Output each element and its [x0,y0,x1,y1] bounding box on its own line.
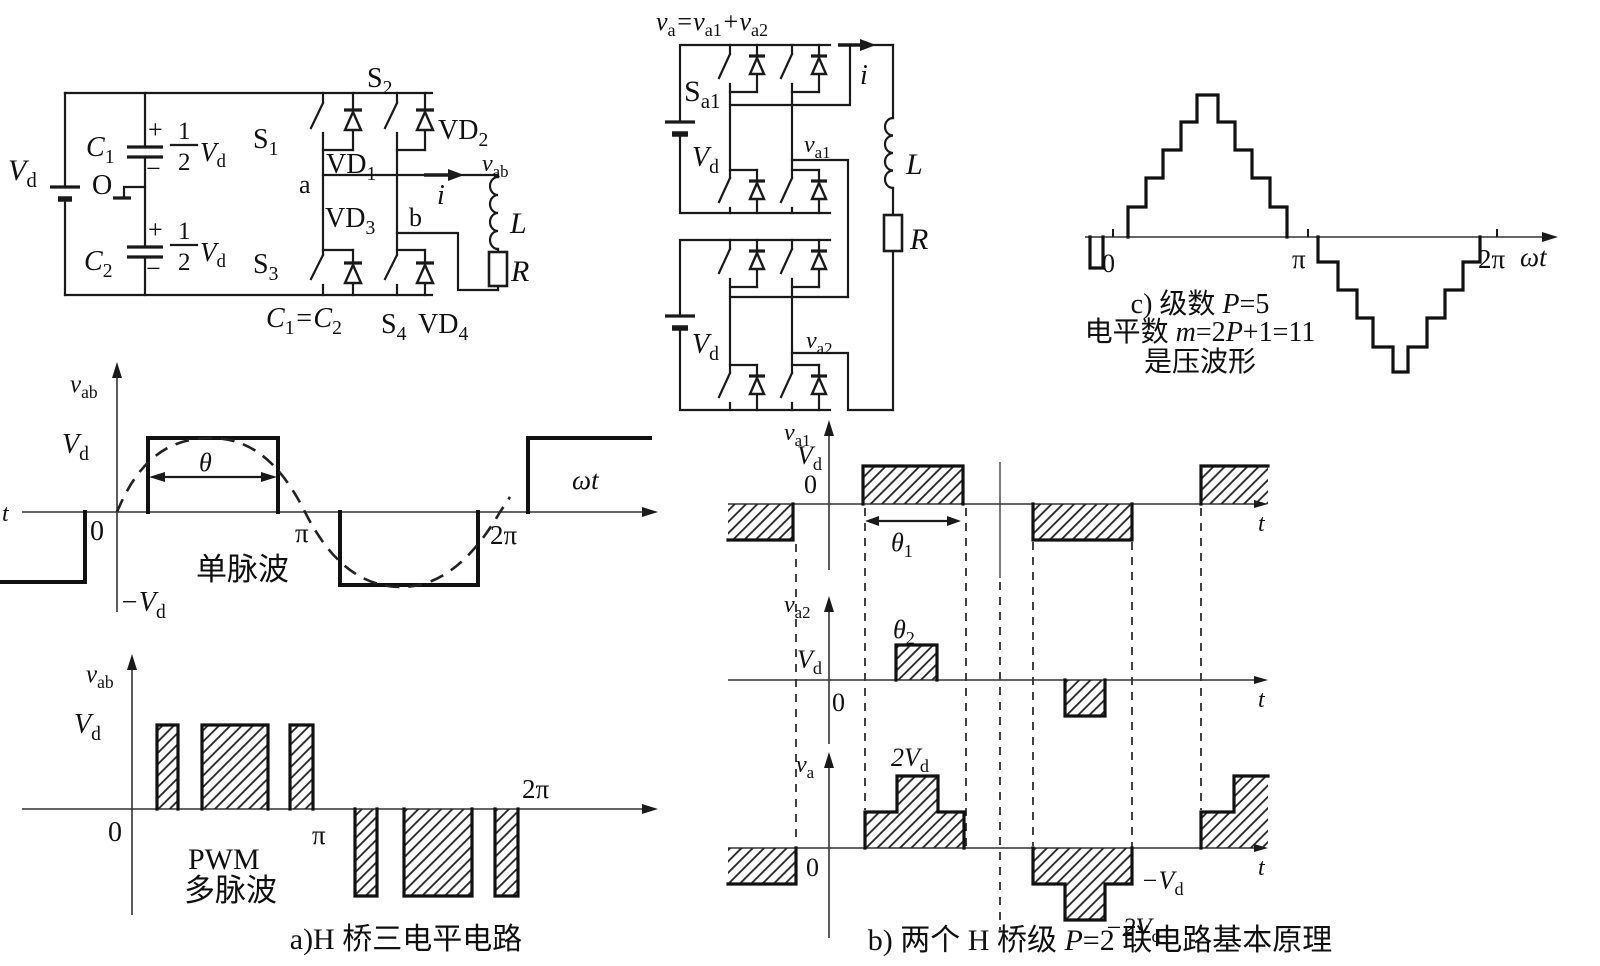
pulse-hatch [1065,884,1105,920]
label-origin: 0 [832,688,845,717]
waveform-single-pulse: t vab Vd 0 θ π 单脉波 2π ωt −Vd [0,362,658,623]
label-minus-2: − [146,254,161,283]
x-axis-arrow-icon [642,507,658,517]
label-va-axis: va [796,752,815,782]
label-c1: C1 [86,132,114,168]
theta-arrow-right-icon [261,472,277,482]
caption-a: a)H 桥三电平电路 [290,923,522,956]
label-vd3: VD3 [325,203,375,239]
frac-vd: Vd [200,237,227,272]
pulse-hatch [1201,812,1268,848]
label-plus-2: + [148,215,163,244]
theta1-arrow-right-icon [947,516,961,526]
timing-guide-lines [796,462,1201,930]
diode-icon [811,240,827,287]
diode-icon [749,240,765,287]
label-s4: S4 [381,309,407,345]
resistor-icon [489,252,507,286]
pwm-pulse-hatch [495,809,518,896]
axis-ticks [1113,229,1497,237]
label-vab-axis: vab [86,661,114,692]
diode-vd4-icon [416,250,434,295]
label-theta: θ [199,448,212,477]
diode-vd1-icon [344,93,362,150]
battery-icon [665,122,695,134]
leg-right [385,93,397,295]
label-pwm: PWM [188,843,260,876]
label-pi: π [295,518,309,548]
label-current-i: i [860,60,868,91]
pulse-hatch [728,848,796,884]
frac-den: 2 [178,149,191,176]
diode-icon [811,45,827,92]
label-current-i: i [437,180,445,211]
pulse-hatch [1065,680,1105,716]
label-s1: S1 [253,124,278,160]
label-neg-vd: −Vd [120,587,166,623]
label-origin: 0 [806,853,819,882]
pair-connectors [730,92,819,170]
label-pi: π [1292,244,1306,274]
label-plus-1: + [148,115,163,144]
label-s2: S2 [367,63,392,99]
label-theta2: θ2 [893,615,915,648]
pulse-hatch [863,466,963,504]
figure-page: Vd C1 O C2 + − 1 2 Vd + − 1 2 Vd S1 S2 S… [0,0,1600,966]
pulse-hatch [897,776,938,812]
label-origin: 0 [1102,249,1115,278]
leg-left [719,240,730,410]
y-axis-arrow-icon [824,596,834,612]
label-va1: va1 [804,132,831,162]
fraction-half-vd-1: 1 2 Vd [171,118,227,176]
caption-c-line3: 是压波形 [1144,346,1256,378]
theta-arrow-left-icon [149,472,165,482]
leg-left [719,45,730,213]
label-c2: C2 [84,246,112,282]
resistor-icon [884,215,902,251]
theta1-arrow-left-icon [865,516,879,526]
label-vd-1: Vd [692,142,719,178]
pulse-hatch [896,645,937,680]
label-pi: π [312,820,326,850]
diode-vd3-icon [344,250,362,295]
label-t: t [1258,855,1266,881]
frac-den: 2 [178,249,191,276]
y-axis-arrow-icon [112,362,122,378]
label-t: t [1258,687,1266,713]
current-arrow-icon [448,169,464,181]
pwm-pulse-hatch [290,725,313,809]
pulse-hatch [1033,504,1132,540]
pulse-hatch [865,812,964,848]
label-vd1: VD1 [326,149,376,185]
pulse-negative [340,512,478,585]
label-node-a: a [299,170,311,199]
figure-canvas: Vd C1 O C2 + − 1 2 Vd + − 1 2 Vd S1 S2 S… [0,0,1600,966]
diode-icon [749,170,765,213]
circuit-cascaded-h-bridge: va=va1+va2 Sa1 Vd Vd [656,7,928,410]
label-single-pulse: 单脉波 [196,552,289,587]
label-va2: va2 [806,328,833,358]
diode-icon [811,170,827,213]
caption-b: b) 两个 H 桥级 P=2 联电路基本原理 [868,924,1332,957]
label-neg-vd: −Vd [1141,866,1184,899]
x-axis-arrow-icon [1542,232,1558,242]
label-vd4: VD4 [418,309,468,345]
pulse-hatch [1201,466,1268,504]
pwm-pulse-hatch [404,809,472,896]
label-omega-t: ωt [572,465,600,495]
label-va-sum-title: va=va1+va2 [656,7,768,40]
pulse-hatch [728,504,793,540]
leg-right [781,240,792,410]
label-c1-equals-c2: C1=C2 [266,303,342,339]
x-axis-arrow-icon [1254,676,1268,684]
label-vab: vab [482,151,509,181]
wire-node-b [397,233,498,290]
staircase-positive [1128,95,1287,237]
label-minus-1: − [146,154,161,183]
y-axis-arrow-icon [127,654,137,670]
current-arrow-icon [860,39,876,51]
label-origin: 0 [90,516,104,547]
caption-c-line2: 电平数 m=2P+1=11 [1085,316,1316,348]
label-o: O [92,170,112,201]
frac-vd: Vd [200,137,227,172]
pwm-pulse-hatch [202,725,268,809]
label-2pi: 2π [490,520,518,550]
inductor-icon [885,118,893,188]
midpoint-tap [124,187,145,197]
frac-num: 1 [178,118,191,145]
label-va2-axis: va2 [784,592,811,622]
label-t: t [1258,511,1266,537]
caption-c-line1: c) 级数 P=5 [1131,288,1270,320]
pwm-pulse-hatch [355,809,377,896]
diode-icon [749,365,765,410]
label-vab-axis: vab [70,371,98,402]
waveform-va1: va1 Vd 0 θ1 t [728,420,1268,570]
label-origin: 0 [804,470,817,499]
inductor-icon [490,177,498,249]
label-vd-level: Vd [74,709,101,745]
label-node-b: b [409,203,422,232]
fraction-half-vd-2: 1 2 Vd [171,218,227,276]
waveform-pwm: vab Vd 0 π PWM 多脉波 2π [22,654,658,915]
pulse-hatch [1033,848,1132,884]
frac-num: 1 [178,218,191,245]
waveform-va: va 0 2Vd −Vd −2Vd t [728,743,1268,946]
label-sa1: Sa1 [684,75,721,113]
output-wire-bottom [792,353,893,410]
label-l: L [509,207,527,240]
label-t-left: t [2,501,10,527]
x-axis-arrow-icon [642,804,658,814]
label-2pi: 2π [522,774,550,804]
leg-right [781,45,792,213]
circuit-h-bridge-3level: Vd C1 O C2 + − 1 2 Vd + − 1 2 Vd S1 S2 S… [8,63,529,345]
pulse-pre-zero [0,512,85,582]
diode-vd2-icon [416,93,434,150]
label-2pi: 2π [1478,244,1506,274]
label-omega-t: ωt [1520,242,1548,272]
label-vd-level: Vd [62,429,89,465]
label-vd2: VD2 [438,115,488,151]
diode-icon [749,45,765,92]
caption-c: c) 级数 P=5 电平数 m=2P+1=11 是压波形 [1085,288,1316,378]
waveform-va2: va2 Vd 0 θ2 t [728,592,1268,744]
pulse-hatch [1234,776,1268,812]
label-l: L [905,148,923,181]
label-vd-source: Vd [8,154,37,192]
y-axis-arrow-icon [824,420,834,436]
diode-icon [811,365,827,410]
label-origin: 0 [108,817,122,848]
battery-icon [50,187,80,199]
label-2vd: 2Vd [891,743,929,776]
leg-left [311,93,323,295]
staircase-negative [1318,237,1480,372]
label-vd-level: Vd [797,645,822,678]
battery-icon [665,316,695,328]
label-multi-pulse: 多脉波 [184,873,277,908]
label-r: R [510,255,529,288]
h-bridge-2 [665,240,893,410]
pwm-pulse-hatch [157,725,178,809]
label-s3: S3 [253,249,279,285]
label-vd-2: Vd [692,329,719,365]
y-axis-arrow-icon [824,752,834,768]
label-r: R [909,223,928,256]
label-theta1: θ1 [891,528,913,561]
